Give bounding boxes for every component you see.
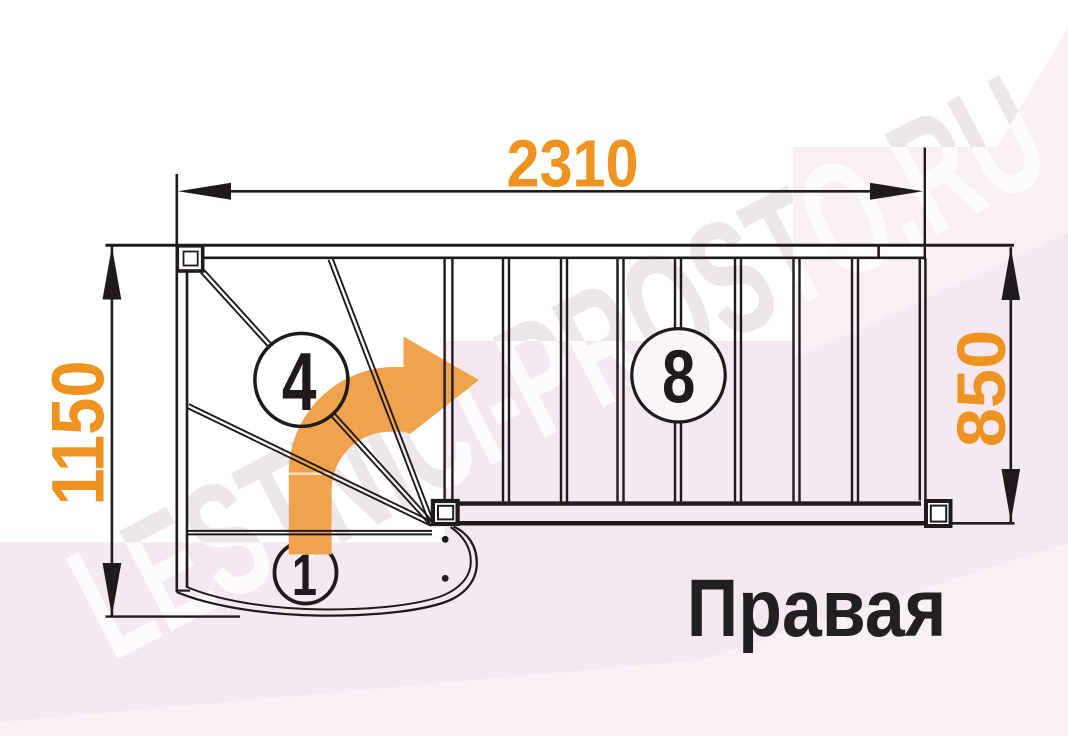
svg-text:Правая: Правая bbox=[687, 562, 947, 654]
svg-text:2310: 2310 bbox=[507, 127, 639, 201]
svg-text:850: 850 bbox=[942, 330, 1019, 447]
svg-text:1150: 1150 bbox=[36, 360, 119, 505]
svg-text:8: 8 bbox=[662, 336, 695, 419]
svg-text:4: 4 bbox=[282, 335, 317, 428]
